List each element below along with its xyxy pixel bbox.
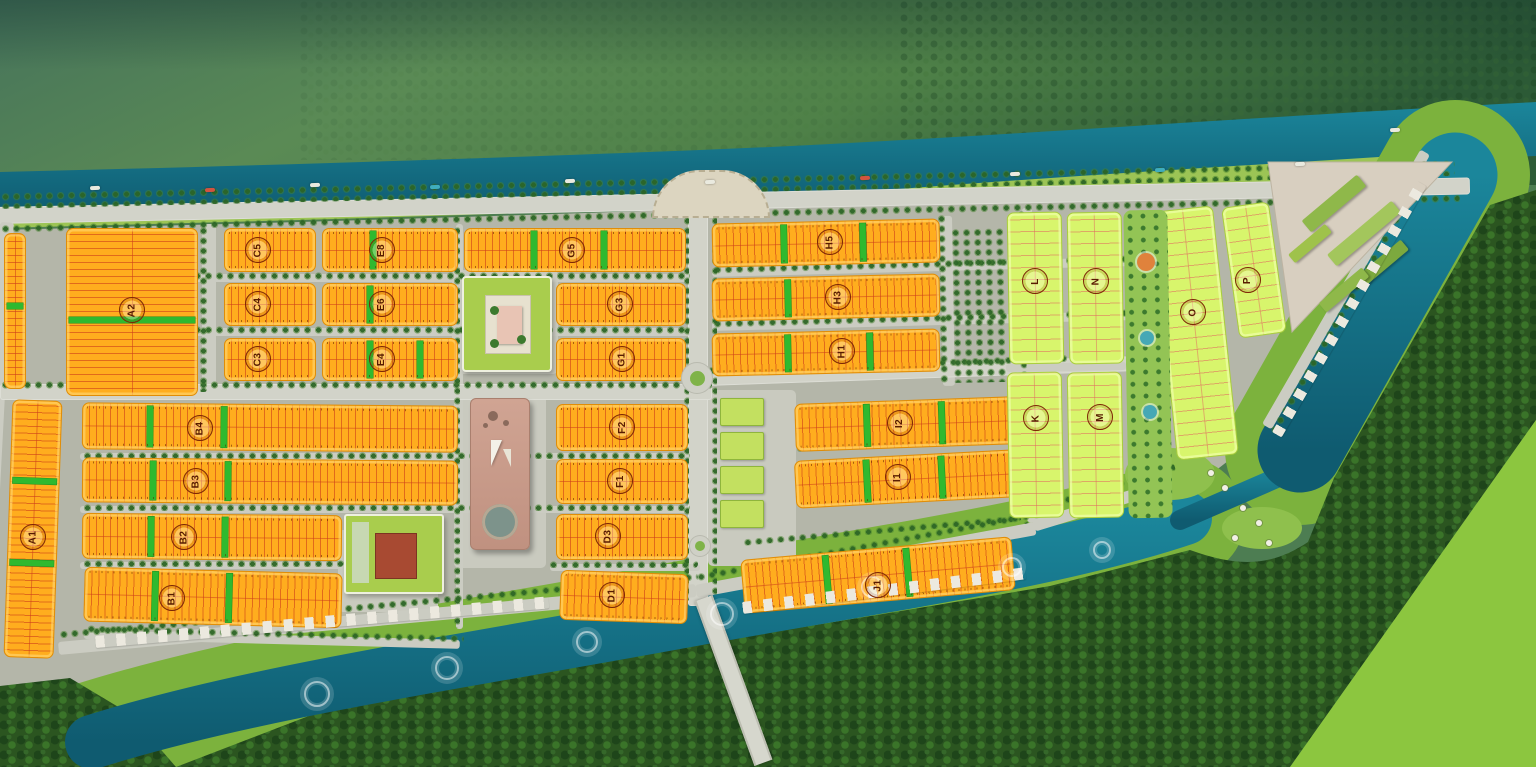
block-badge-label: D3 [602, 529, 613, 543]
green-divider [863, 404, 870, 446]
block-badge-G1: G1 [609, 346, 635, 372]
block-badge-label: B3 [190, 474, 201, 488]
green-divider [785, 280, 792, 317]
marina-tower-building [470, 398, 530, 550]
block-badge-C5: C5 [245, 237, 271, 263]
villa-building [720, 432, 764, 460]
block-badge-M: M [1087, 404, 1113, 430]
picnic-umbrella [1256, 520, 1262, 526]
canal-fountain [576, 631, 598, 653]
block-badge-label: H3 [832, 290, 843, 304]
block-badge-label: I2 [895, 418, 906, 427]
roof-skylight [483, 423, 488, 428]
plot-block-K [1007, 372, 1065, 519]
block-badge-label: P [1242, 276, 1253, 283]
river-boat [205, 188, 215, 192]
block-badge-H3: H3 [825, 284, 851, 310]
block-badge-label: D1 [606, 588, 617, 602]
green-divider [225, 573, 232, 622]
clubhouse-building [462, 276, 552, 372]
roundabout-island [690, 371, 705, 386]
block-badge-A2: A2 [119, 297, 145, 323]
green-divider [147, 516, 153, 556]
green-divider [601, 231, 607, 269]
river-boat [1010, 172, 1020, 176]
picnic-umbrella [1208, 470, 1214, 476]
tree-line [950, 227, 1008, 383]
block-badge-label: G5 [567, 243, 578, 257]
block-badge-G5: G5 [559, 237, 585, 263]
block-badge-K: K [1023, 405, 1049, 431]
picnic-umbrella [1232, 535, 1238, 541]
block-badge-label: C5 [252, 243, 263, 257]
block-badge-label: L [1029, 278, 1040, 285]
plot-block-B2 [82, 513, 342, 561]
canal-bridge [695, 595, 773, 766]
roof-skylight [503, 420, 509, 426]
masterplan-rendering: A2A1C5C4C3E8E6E4G5G3G1H5H3H1B4B3B2B1F2F1… [0, 0, 1536, 767]
villa-building [720, 500, 764, 528]
river-boat [565, 179, 575, 183]
campus-courtyard [375, 533, 417, 579]
plot-block-B4 [82, 402, 458, 452]
block-badge-J1: J1 [865, 572, 891, 598]
block-badge-N: N [1083, 268, 1109, 294]
green-divider [780, 225, 787, 263]
roundabout-island [695, 541, 705, 551]
picnic-umbrella [1222, 485, 1228, 491]
roof-skylight [488, 411, 498, 421]
block-badge-F2: F2 [609, 414, 635, 440]
green-divider [13, 477, 57, 485]
tree-line [548, 560, 698, 568]
river-boat [860, 176, 870, 180]
green-divider [417, 341, 423, 378]
block-badge-label: A2 [126, 303, 137, 317]
plot-block-B3 [82, 457, 458, 505]
plot-block-D3 [556, 514, 688, 560]
villa-building [720, 466, 764, 494]
block-badge-label: A1 [27, 530, 38, 544]
campus-wing [352, 522, 369, 583]
block-badge-O: O [1180, 299, 1206, 325]
block-badge-E4: E4 [369, 346, 395, 372]
block-badge-label: M [1095, 413, 1106, 422]
block-badge-label: K [1030, 414, 1041, 422]
villa-building [720, 398, 764, 426]
block-badge-E8: E8 [369, 237, 395, 263]
block-badge-B3: B3 [183, 468, 209, 494]
green-divider [222, 517, 228, 557]
block-badge-label: F2 [616, 421, 627, 434]
river-boat [1390, 128, 1400, 132]
block-badge-label: H5 [824, 235, 835, 249]
canal-fountain [710, 602, 734, 626]
green-divider [531, 231, 537, 269]
block-badge-L: L [1022, 268, 1048, 294]
plot-block-H1 [712, 328, 941, 376]
courtyard-tree [490, 339, 499, 348]
block-badge-I1: I1 [885, 464, 911, 490]
canal-fountain [1093, 541, 1111, 559]
green-divider [859, 223, 866, 261]
plan-overlay: A2A1C5C4C3E8E6E4G5G3G1H5H3H1B4B3B2B1F2F1… [0, 0, 1536, 767]
esplanade-structures [1272, 181, 1427, 438]
block-badge-label: J1 [873, 579, 884, 591]
tower-pool [482, 504, 518, 540]
green-divider [938, 456, 946, 498]
block-badge-label: C4 [252, 297, 263, 311]
block-badge-label: B1 [166, 591, 177, 605]
block-badge-label: E4 [376, 352, 387, 365]
campus-building [344, 514, 444, 594]
block-badge-E6: E6 [369, 291, 395, 317]
block-badge-label: N [1090, 277, 1101, 285]
block-badge-label: E6 [376, 297, 387, 310]
river-boat [430, 185, 440, 189]
tree-line [198, 226, 208, 392]
block-badge-C3: C3 [245, 346, 271, 372]
block-badge-A1: A1 [20, 524, 46, 550]
green-divider [151, 571, 158, 620]
plot-block-A-strip [4, 233, 26, 389]
block-badge-label: E8 [376, 243, 387, 256]
block-badge-B4: B4 [187, 415, 213, 441]
green-divider [785, 335, 792, 372]
block-badge-label: H1 [836, 344, 847, 358]
block-badge-C4: C4 [245, 291, 271, 317]
green-divider [225, 462, 231, 501]
river-boat [310, 183, 320, 187]
green-divider [863, 460, 871, 502]
block-badge-G3: G3 [607, 291, 633, 317]
river-boat [90, 186, 100, 190]
block-badge-F1: F1 [607, 468, 633, 494]
park-playground [1140, 331, 1154, 345]
river-boat [705, 180, 715, 184]
block-badge-P: P [1235, 267, 1261, 293]
sailboat-icon [491, 440, 502, 466]
block-badge-D1: D1 [599, 582, 625, 608]
picnic-umbrella [1240, 505, 1246, 511]
picnic-umbrella [1266, 540, 1272, 546]
block-badge-D3: D3 [595, 523, 621, 549]
block-badge-I2: I2 [887, 410, 913, 436]
block-badge-B2: B2 [171, 524, 197, 550]
river-boat [1155, 168, 1165, 172]
block-badge-H5: H5 [817, 229, 843, 255]
green-divider [10, 559, 54, 567]
canal-fountain [435, 656, 459, 680]
green-divider [146, 406, 152, 447]
block-badge-label: B4 [194, 421, 205, 435]
block-badge-label: B2 [178, 530, 189, 544]
green-divider [866, 333, 873, 370]
green-divider [7, 303, 23, 309]
park-playground [1143, 405, 1157, 419]
park-playground [1137, 253, 1155, 271]
green-divider [938, 402, 945, 444]
block-badge-label: I1 [893, 472, 904, 481]
block-badge-H1: H1 [829, 338, 855, 364]
green-divider [221, 407, 227, 448]
canal-fountain [304, 681, 330, 707]
block-badge-label: G3 [615, 297, 626, 311]
sailboat-icon-small [503, 449, 511, 467]
block-badge-label: C3 [252, 352, 263, 366]
plot-block-M [1067, 372, 1125, 519]
block-badge-label: O [1188, 308, 1199, 316]
block-badge-label: G1 [617, 352, 628, 366]
block-badge-B1: B1 [159, 585, 185, 611]
block-badge-label: F1 [614, 475, 625, 488]
river-boat [1295, 162, 1305, 166]
courtyard-tree [490, 306, 499, 315]
canal-fountain [1002, 557, 1022, 577]
green-divider [150, 461, 156, 500]
